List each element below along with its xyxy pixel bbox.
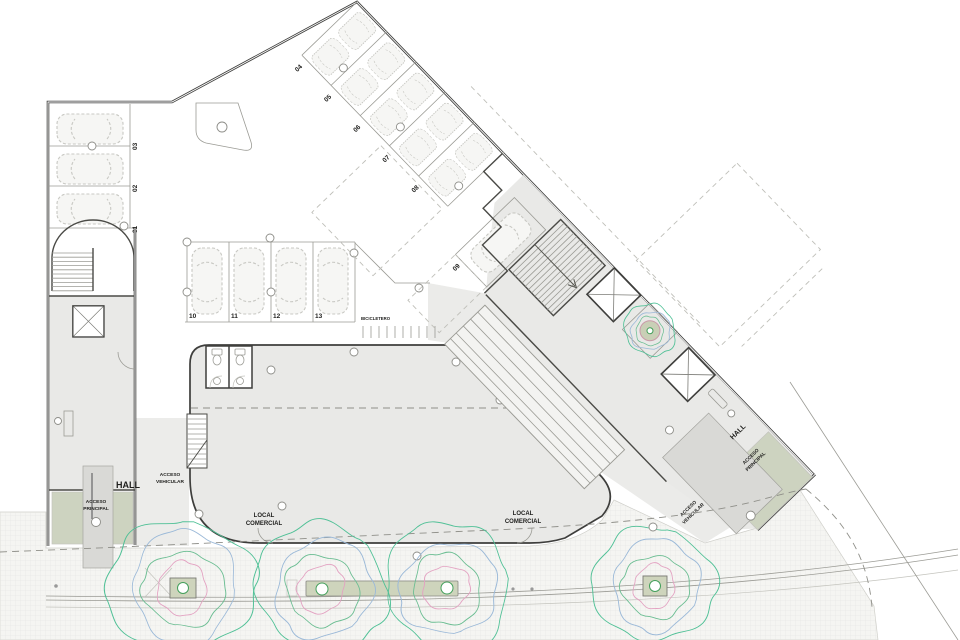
marker-dot: [54, 584, 58, 588]
tree-trunk: [650, 581, 661, 592]
restrooms: [206, 346, 252, 388]
car-outline: [234, 248, 264, 314]
floor-plan-page: 03 02 01 HALL ACCESO PRINCIPAL ACCESO VE…: [0, 0, 960, 640]
car-outline: [57, 154, 123, 184]
local-comercial-left-1: LOCAL: [254, 513, 275, 519]
elevator-icon: [73, 306, 104, 337]
acceso-vehicular-left-2: VEHICULAR: [156, 479, 185, 485]
car-outline: [318, 248, 348, 314]
car-outline: [276, 248, 306, 314]
column: [267, 288, 275, 296]
car-outline: [57, 114, 123, 144]
column: [195, 510, 203, 518]
acceso-principal-left-2: PRINCIPAL: [83, 506, 109, 512]
acceso-principal-left: ACCESO: [86, 499, 107, 505]
marker-dot: [511, 587, 514, 590]
stall-number: 02: [132, 184, 139, 192]
column: [267, 366, 275, 374]
car-outline: [192, 248, 222, 314]
column: [92, 518, 101, 527]
column: [649, 523, 657, 531]
stall-number: 13: [315, 313, 323, 320]
column: [55, 418, 62, 425]
column: [183, 238, 191, 246]
column: [120, 222, 128, 230]
stall-number: 03: [132, 142, 139, 150]
floor-plan: 03 02 01 HALL ACCESO PRINCIPAL ACCESO VE…: [0, 0, 960, 640]
local-comercial-left-2: COMERCIAL: [246, 521, 283, 527]
local-comercial-right-1: LOCAL: [513, 511, 534, 517]
column: [415, 284, 423, 292]
marker-dot: [530, 587, 533, 590]
hall-label-left: HALL: [116, 480, 140, 490]
stall-number: 11: [231, 313, 238, 320]
column: [88, 142, 96, 150]
tree-trunk: [316, 583, 328, 595]
entry-walkway: [83, 466, 113, 568]
column: [278, 502, 286, 510]
acceso-vehicular-left-1: ACCESO: [160, 472, 181, 478]
tree-trunk: [441, 582, 453, 594]
interior-ramp: [187, 414, 207, 468]
local-comercial-right-2: COMERCIAL: [505, 519, 542, 525]
column: [266, 234, 274, 242]
bicicletero-label: BICICLETERO: [361, 316, 391, 321]
column: [350, 348, 358, 356]
stall-number: 12: [273, 313, 281, 320]
planter-strip: [306, 581, 458, 596]
stall-number: 10: [189, 313, 197, 320]
column: [183, 288, 191, 296]
tree-trunk: [178, 583, 189, 594]
